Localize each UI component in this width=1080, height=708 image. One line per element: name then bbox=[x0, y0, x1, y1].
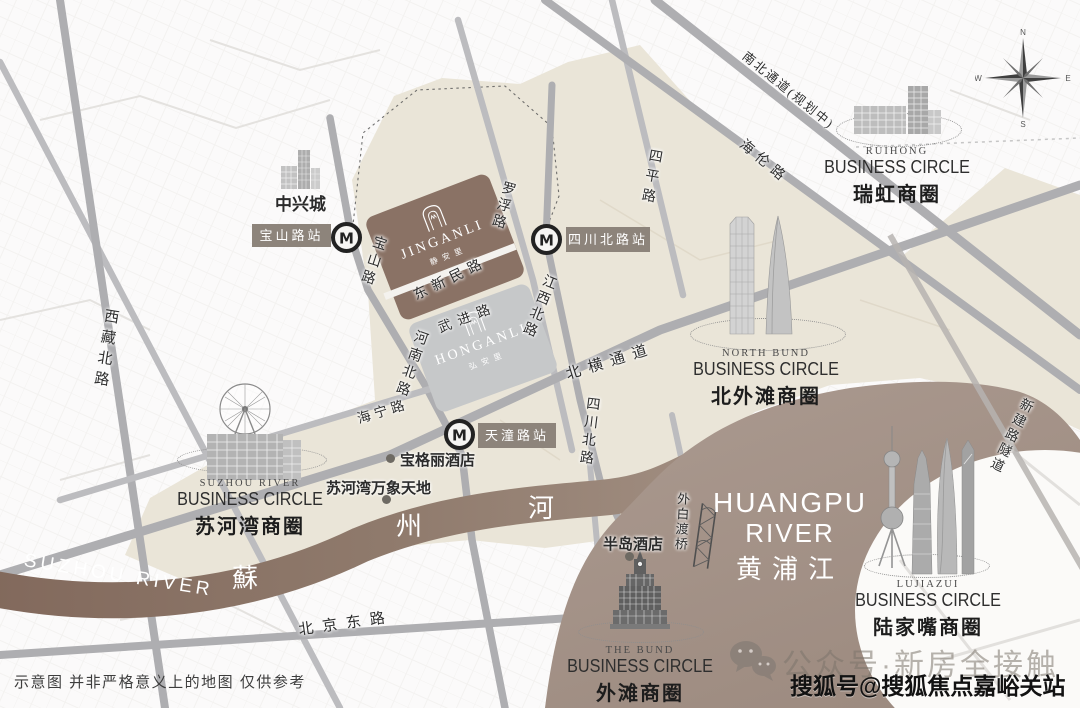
north-bund-type: BUSINESS CIRCLE bbox=[667, 359, 865, 380]
poi-suhewan-mixc: 苏河湾万象天地 bbox=[326, 477, 431, 498]
svg-text:M: M bbox=[539, 232, 554, 250]
svg-text:M: M bbox=[339, 230, 354, 248]
huangpu-river-en1: HUANGPU bbox=[700, 487, 880, 519]
suzhou-river-char-he: 河 bbox=[528, 488, 554, 525]
the-bund-en: THE BUND bbox=[530, 645, 750, 656]
metro-icon-baoshanlu: M bbox=[330, 221, 363, 254]
compass-rose: N E S W bbox=[975, 28, 1071, 128]
lujiazui-texts: LUJIAZUI BUSINESS CIRCLE 陆家嘴商圈 bbox=[818, 579, 1038, 640]
ruihong-cn: 瑞虹商圈 bbox=[787, 178, 1007, 207]
poi-dot-bulgari bbox=[386, 454, 395, 463]
ruihong-en: RUIHONG bbox=[787, 146, 1007, 157]
svg-text:M: M bbox=[452, 427, 467, 445]
suzhou-river-char-zhou: 州 bbox=[396, 506, 422, 543]
poi-dot-peninsula bbox=[625, 552, 634, 561]
the-bund-building-icon bbox=[610, 550, 670, 634]
suzhou-river-char-su: 蘇 bbox=[232, 558, 258, 595]
station-label-sichuanbeilu: 四川北路站 bbox=[566, 227, 650, 252]
poi-bulgari-hotel: 宝格丽酒店 bbox=[400, 449, 475, 470]
the-bund-type: BUSINESS CIRCLE bbox=[541, 656, 739, 677]
map-disclaimer: 示意图 并非严格意义上的地图 仅供参考 bbox=[14, 671, 306, 692]
zhongxingcheng-building-icon bbox=[280, 146, 322, 190]
the-bund-texts: THE BUND BUSINESS CIRCLE 外滩商圈 bbox=[530, 645, 750, 706]
svg-text:E: E bbox=[1065, 74, 1070, 83]
jinganli-arch-logo bbox=[417, 200, 449, 234]
north-bund-en: NORTH BUND bbox=[656, 348, 876, 359]
svg-text:S: S bbox=[1020, 120, 1025, 128]
metro-icon-sichuanbeilu: M bbox=[530, 223, 563, 256]
ruihong-texts: RUIHONG BUSINESS CIRCLE 瑞虹商圈 bbox=[787, 146, 1007, 207]
suzhou-bc-building-icon bbox=[205, 382, 305, 482]
lujiazui-type: BUSINESS CIRCLE bbox=[829, 590, 1027, 611]
station-label-tiantonglu: 天潼路站 bbox=[478, 423, 556, 448]
wechat-icon bbox=[728, 638, 778, 684]
poi-dot-suhewan-mixc bbox=[382, 495, 391, 504]
north-bund-cn: 北外滩商圈 bbox=[656, 380, 876, 409]
ruihong-building-icon bbox=[852, 80, 944, 136]
poi-zhongxingcheng: 中兴城 bbox=[275, 190, 326, 215]
svg-text:W: W bbox=[975, 74, 982, 83]
suzhou-bc-cn: 苏河湾商圈 bbox=[140, 510, 360, 539]
svg-text:N: N bbox=[1020, 28, 1026, 37]
suzhou-bc-type: BUSINESS CIRCLE bbox=[151, 489, 349, 510]
poi-peninsula-hotel: 半岛酒店 bbox=[603, 533, 663, 554]
lujiazui-cn: 陆家嘴商圈 bbox=[818, 611, 1038, 640]
map-canvas: JINGANLI 静安里 HONGANLI 弘安里 宝山路站 M M 四川北路站… bbox=[0, 0, 1080, 708]
huangpu-river-en2: RIVER bbox=[700, 518, 880, 549]
metro-icon-tiantonglu: M bbox=[443, 418, 476, 451]
lujiazui-towers-icon bbox=[876, 424, 978, 576]
north-bund-texts: NORTH BUND BUSINESS CIRCLE 北外滩商圈 bbox=[656, 348, 876, 409]
road-waibaidu-bridge: 外白渡桥 bbox=[670, 492, 692, 553]
watermark-sohu-account: 搜狐号@搜狐焦点嘉峪关站 bbox=[790, 667, 1065, 701]
station-label-baoshanlu: 宝山路站 bbox=[252, 224, 331, 247]
ruihong-type: BUSINESS CIRCLE bbox=[798, 157, 996, 178]
north-bund-towers-icon bbox=[728, 212, 796, 336]
huangpu-river-cn: 黄浦江 bbox=[700, 549, 880, 586]
the-bund-cn: 外滩商圈 bbox=[530, 677, 750, 706]
